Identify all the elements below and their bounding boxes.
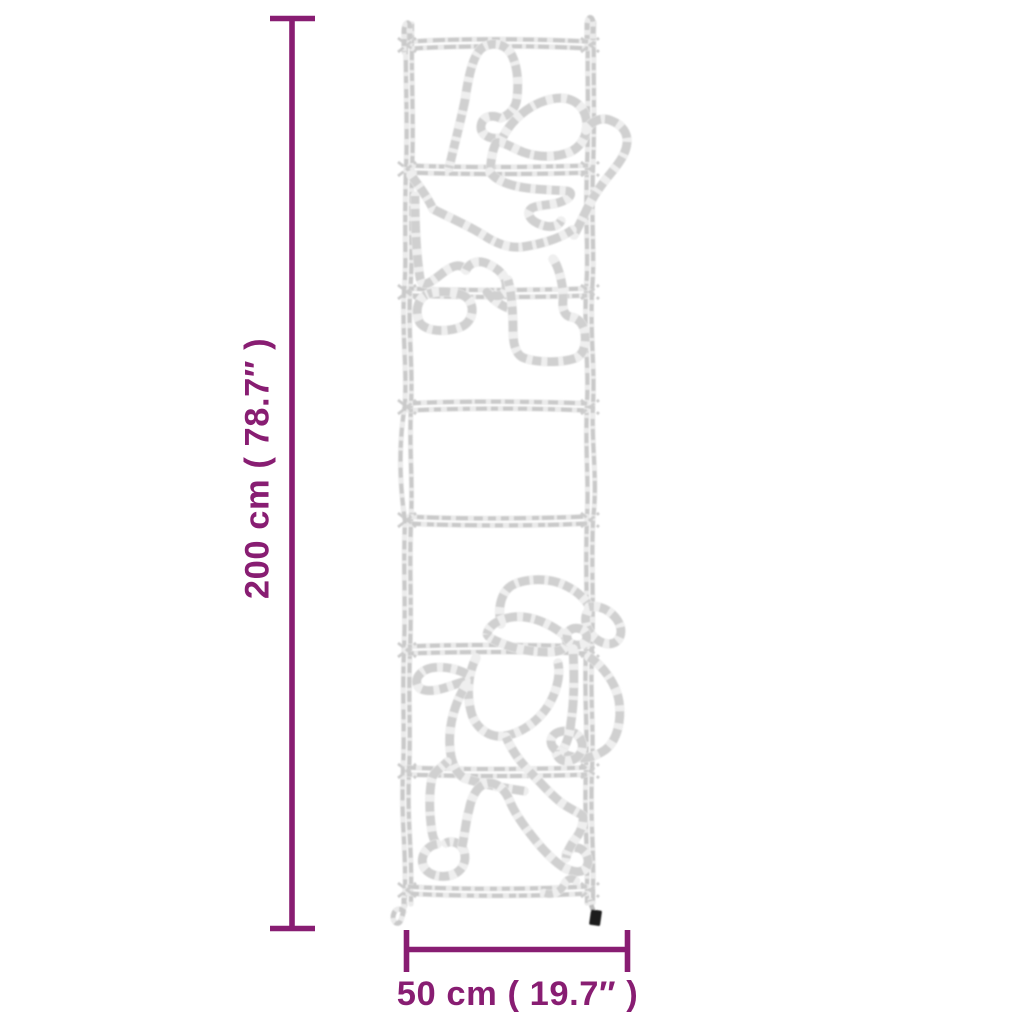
svg-text:200 cm ( 78.7″ ): 200 cm ( 78.7″ ) bbox=[239, 338, 277, 599]
svg-text:50 cm ( 19.7″ ): 50 cm ( 19.7″ ) bbox=[397, 975, 638, 1013]
